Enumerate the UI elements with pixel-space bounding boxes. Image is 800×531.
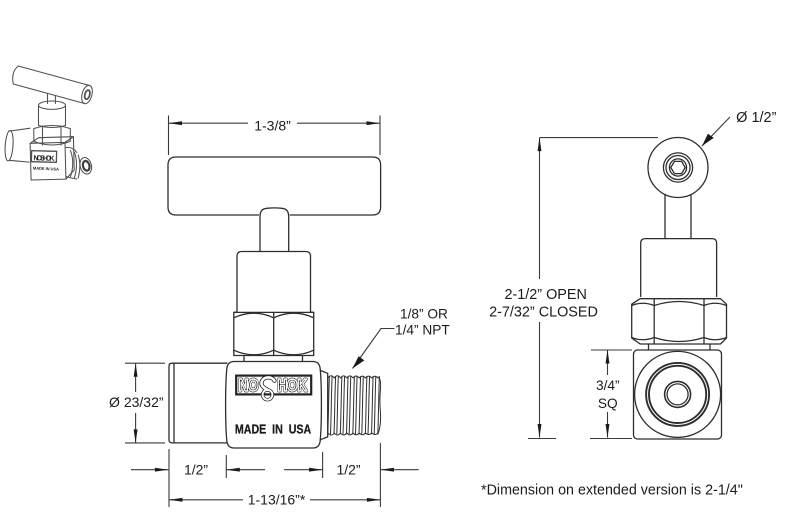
svg-text:SQ: SQ [598,396,618,411]
svg-text:MADE IN USA: MADE IN USA [33,166,59,172]
svg-text:NO: NO [239,376,259,395]
svg-text:1/2”: 1/2” [184,462,208,478]
svg-text:MADE IN USA: MADE IN USA [235,421,312,436]
svg-text:1/2”: 1/2” [336,462,360,478]
svg-text:1/8” OR: 1/8” OR [400,307,448,322]
svg-text:1/4” NPT: 1/4” NPT [395,323,450,338]
svg-text:1-3/8”: 1-3/8” [254,118,291,134]
svg-text:HOK: HOK [278,376,308,395]
svg-text:2-1/2” OPEN: 2-1/2” OPEN [505,287,587,303]
svg-text:2-7/32” CLOSED: 2-7/32” CLOSED [489,305,598,321]
svg-text:NOSHOK: NOSHOK [33,153,55,163]
svg-text:3/4”: 3/4” [596,378,620,393]
svg-text:1-13/16”*: 1-13/16”* [248,492,306,508]
svg-text:Ø 23/32”: Ø 23/32” [109,394,164,410]
svg-text:*Dimension on extended version: *Dimension on extended version is 2-1/4" [481,483,743,499]
svg-text:Ø 1/2”: Ø 1/2” [736,110,776,126]
